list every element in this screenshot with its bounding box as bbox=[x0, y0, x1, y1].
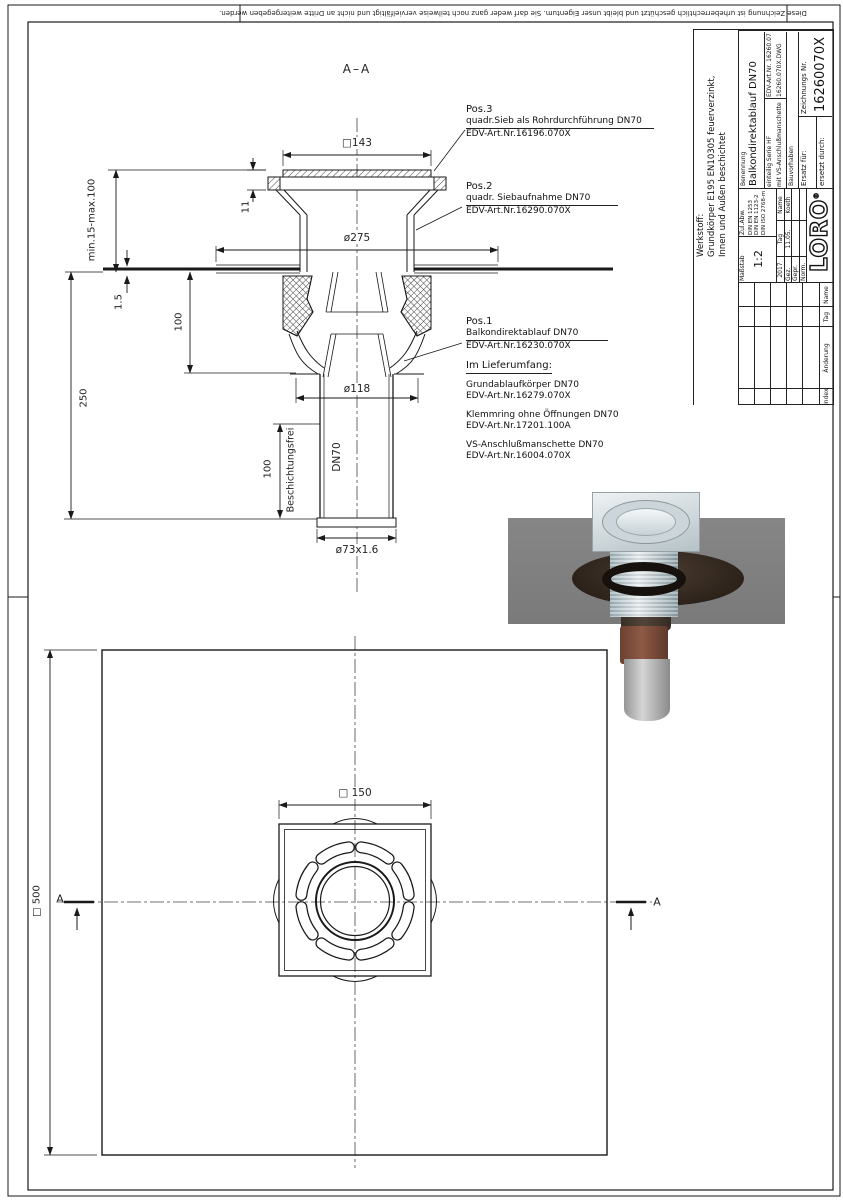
pos3-edv: EDV-Art.Nr.16196.070X bbox=[466, 129, 654, 141]
section-marker-left: A bbox=[56, 893, 64, 906]
pos3-desc: quadr.Sieb als Rohrdurchführung DN70 bbox=[466, 116, 654, 130]
pos2-edv: EDV-Art.Nr.16290.070X bbox=[466, 206, 618, 218]
variant-line2: mit VS-Anschlußmanschette bbox=[776, 101, 783, 187]
scope-title: Im Lieferumfang: bbox=[466, 360, 552, 374]
dim-outlet-diameter: ø118 bbox=[342, 383, 372, 395]
rev-col-index: Index bbox=[823, 389, 830, 405]
drawing-number-label: Zeichnungs Nr. bbox=[800, 61, 808, 114]
scale-label: Maßstab bbox=[739, 255, 746, 281]
loro-logo-text: LORO bbox=[807, 199, 833, 272]
scope-item: Grundablaufkörper DN70 EDV-Art.Nr.16279.… bbox=[466, 380, 666, 403]
scope-item-edv: EDV-Art.Nr.16004.070X bbox=[466, 451, 666, 463]
tolerance-standards: DIN EN 1253 DIN EN 1123-2 DIN ISO 2768-m bbox=[748, 190, 767, 235]
designation-label: Benennung bbox=[740, 152, 747, 186]
dim-membrane-thickness: 1.5 bbox=[114, 294, 125, 310]
material-line1: Grundkörper E195 EN10305 feuerverzinkt, bbox=[707, 31, 718, 257]
section-view-label: A–A bbox=[343, 62, 371, 76]
variant-line1: einteilig Serie HF bbox=[766, 101, 773, 187]
drawing-number: 16260070X bbox=[813, 32, 828, 117]
registered-mark: ® bbox=[812, 192, 820, 200]
tolerance-std3: DIN ISO 2768-m bbox=[761, 190, 767, 235]
grate-render bbox=[592, 492, 700, 552]
sig-col-name: Name bbox=[777, 189, 784, 221]
sig-gez-date: 11.05. bbox=[785, 221, 792, 257]
rev-col-tag: Tag bbox=[823, 307, 830, 327]
dim-frame-height: 11 bbox=[241, 201, 252, 214]
callout-pos2: Pos.2 quadr. Siebaufnahme DN70 EDV-Art.N… bbox=[466, 181, 618, 218]
scope-item-name: VS-Anschlußmanschette DN70 bbox=[466, 440, 666, 452]
sig-gez-name: Koeth bbox=[785, 189, 792, 221]
loro-logo: LORO® bbox=[807, 192, 833, 272]
scope-item: VS-Anschlußmanschette DN70 EDV-Art.Nr.16… bbox=[466, 440, 666, 463]
pos1-edv: EDV-Art.Nr.16230.070X bbox=[466, 341, 608, 353]
dim-pipe-od: ø73x1.6 bbox=[334, 544, 381, 556]
pos2-desc: quadr. Siebaufnahme DN70 bbox=[466, 193, 618, 207]
sig-col-tag: Tag bbox=[777, 221, 784, 257]
scope-of-delivery: Im Lieferumfang: Grundablaufkörper DN70 … bbox=[466, 360, 666, 470]
copyright-notice: Diese Zeichnung ist urheberrechtlich ges… bbox=[219, 9, 807, 17]
section-marker-right: A bbox=[653, 896, 661, 909]
tolerance-label: Zul.Abw. bbox=[739, 209, 746, 235]
rev-col-name: Name bbox=[823, 283, 830, 307]
dwg-file: 16260.070X.DWG bbox=[776, 33, 783, 97]
scope-item-name: Klemmring ohne Öffnungen DN70 bbox=[466, 410, 666, 422]
sig-row-gepr: Gepr. bbox=[792, 265, 799, 281]
grate-hole-render bbox=[616, 508, 676, 536]
dim-plan-grate: □ 150 bbox=[336, 787, 373, 799]
drawing-sheet: Diese Zeichnung ist urheberrechtlich ges… bbox=[0, 0, 843, 1200]
sig-row-gez: Gez. bbox=[785, 268, 792, 281]
replaced-by-label: ersetzt durch: bbox=[818, 137, 826, 186]
scope-item-edv: EDV-Art.Nr.17201.100A bbox=[466, 421, 666, 433]
product-3d-render bbox=[503, 476, 787, 724]
project-label: Bauvorhaben bbox=[788, 146, 795, 186]
callout-pos1: Pos.1 Balkondirektablauf DN70 EDV-Art.Nr… bbox=[466, 316, 608, 353]
pos3-id: Pos.3 bbox=[466, 104, 654, 116]
dim-coating-free-length: 100 bbox=[263, 459, 274, 478]
pos2-id: Pos.2 bbox=[466, 181, 618, 193]
dim-body-height: 100 bbox=[174, 312, 185, 331]
dim-plan-membrane: □ 500 bbox=[32, 885, 43, 917]
tolerance-std2: DIN EN 1123-2 bbox=[754, 190, 760, 235]
scope-item-name: Grundablaufkörper DN70 bbox=[466, 380, 666, 392]
material-note: Werkstoff: Grundkörper E195 EN10305 feue… bbox=[696, 31, 729, 257]
dim-square-top: □143 bbox=[340, 137, 374, 149]
material-line2: Innen und Außen beschichtet bbox=[718, 31, 729, 257]
scale-value: 1:2 bbox=[752, 237, 765, 281]
pipe-size-label: DN70 bbox=[331, 442, 343, 471]
sig-year: 2017 bbox=[777, 257, 784, 283]
rev-col-aenderung: Änderung bbox=[823, 327, 830, 389]
pos1-desc: Balkondirektablauf DN70 bbox=[466, 328, 608, 342]
pos1-id: Pos.1 bbox=[466, 316, 608, 328]
designation-value: Balkondirektablauf DN70 bbox=[748, 34, 759, 186]
sig-row-norm: Norm. bbox=[800, 263, 807, 281]
material-label: Werkstoff: bbox=[696, 31, 707, 257]
edv-number: EDV-Art.Nr. 16260.070X bbox=[766, 33, 773, 97]
replacement-for-label: Ersatz für: bbox=[800, 150, 808, 186]
seal-ring-render bbox=[602, 562, 686, 596]
title-block: Werkstoff: Grundkörper E195 EN10305 feue… bbox=[693, 29, 834, 405]
scope-item: Klemmring ohne Öffnungen DN70 EDV-Art.Nr… bbox=[466, 410, 666, 433]
outlet-pipe-render bbox=[624, 659, 670, 721]
callout-pos3: Pos.3 quadr.Sieb als Rohrdurchführung DN… bbox=[466, 104, 654, 141]
dim-coating-free-label: Beschichtungsfrei bbox=[286, 428, 297, 513]
scope-item-edv: EDV-Art.Nr.16279.070X bbox=[466, 391, 666, 403]
dim-flange-diameter: ø275 bbox=[342, 232, 372, 244]
dim-total-height: 250 bbox=[79, 388, 90, 407]
dim-install-depth: min.15-max.100 bbox=[87, 179, 98, 261]
